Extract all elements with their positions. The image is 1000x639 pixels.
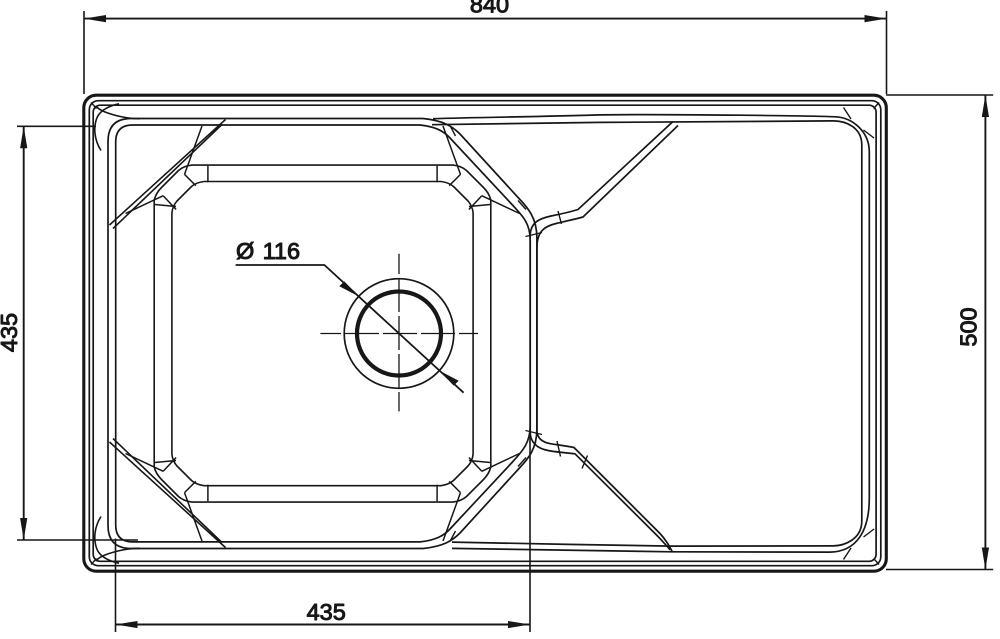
svg-text:Ø: Ø	[236, 238, 254, 264]
svg-text:435: 435	[0, 313, 22, 352]
svg-text:116: 116	[263, 238, 300, 264]
svg-text:435: 435	[307, 599, 346, 625]
svg-text:500: 500	[955, 307, 981, 346]
svg-text:840: 840	[470, 0, 509, 17]
